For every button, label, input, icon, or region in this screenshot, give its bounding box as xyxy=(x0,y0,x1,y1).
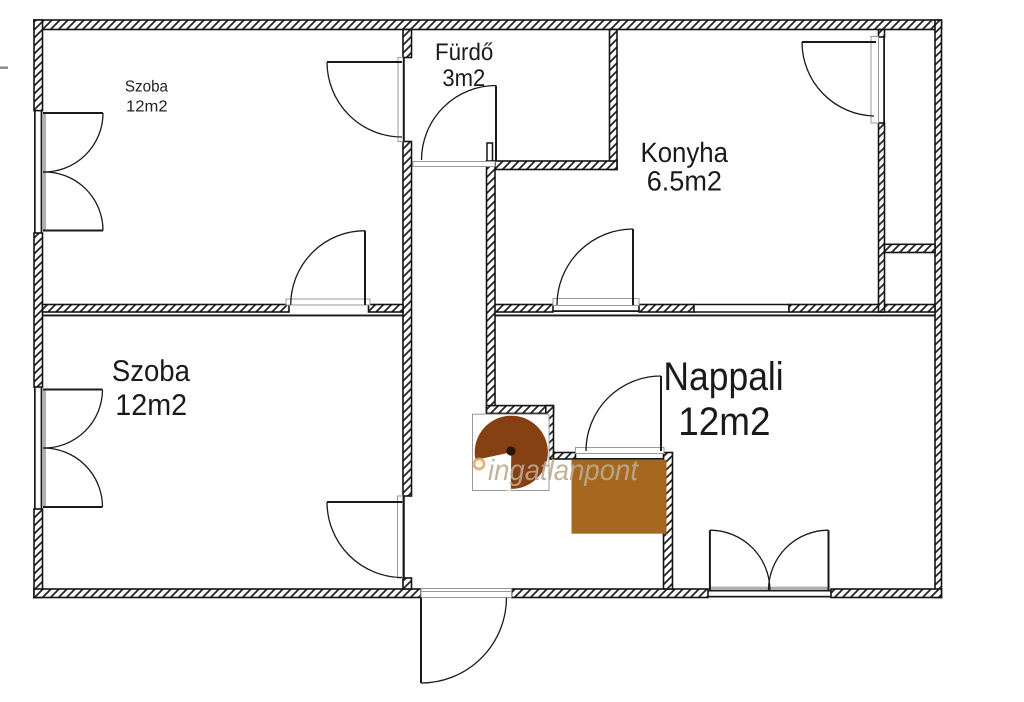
svg-text:12m2: 12m2 xyxy=(115,389,187,422)
svg-text:Szoba: Szoba xyxy=(112,355,190,388)
svg-text:Fürdő: Fürdő xyxy=(435,39,493,66)
svg-text:Konyha: Konyha xyxy=(641,137,729,168)
svg-text:6.5m2: 6.5m2 xyxy=(647,166,722,197)
svg-text:ingatlanpont: ingatlanpont xyxy=(488,455,640,487)
svg-text:Nappali: Nappali xyxy=(663,355,783,399)
svg-text:Szoba: Szoba xyxy=(125,78,168,95)
svg-text:12m2: 12m2 xyxy=(678,400,770,444)
svg-text:12m2: 12m2 xyxy=(126,99,168,116)
svg-text:3m2: 3m2 xyxy=(442,65,485,92)
